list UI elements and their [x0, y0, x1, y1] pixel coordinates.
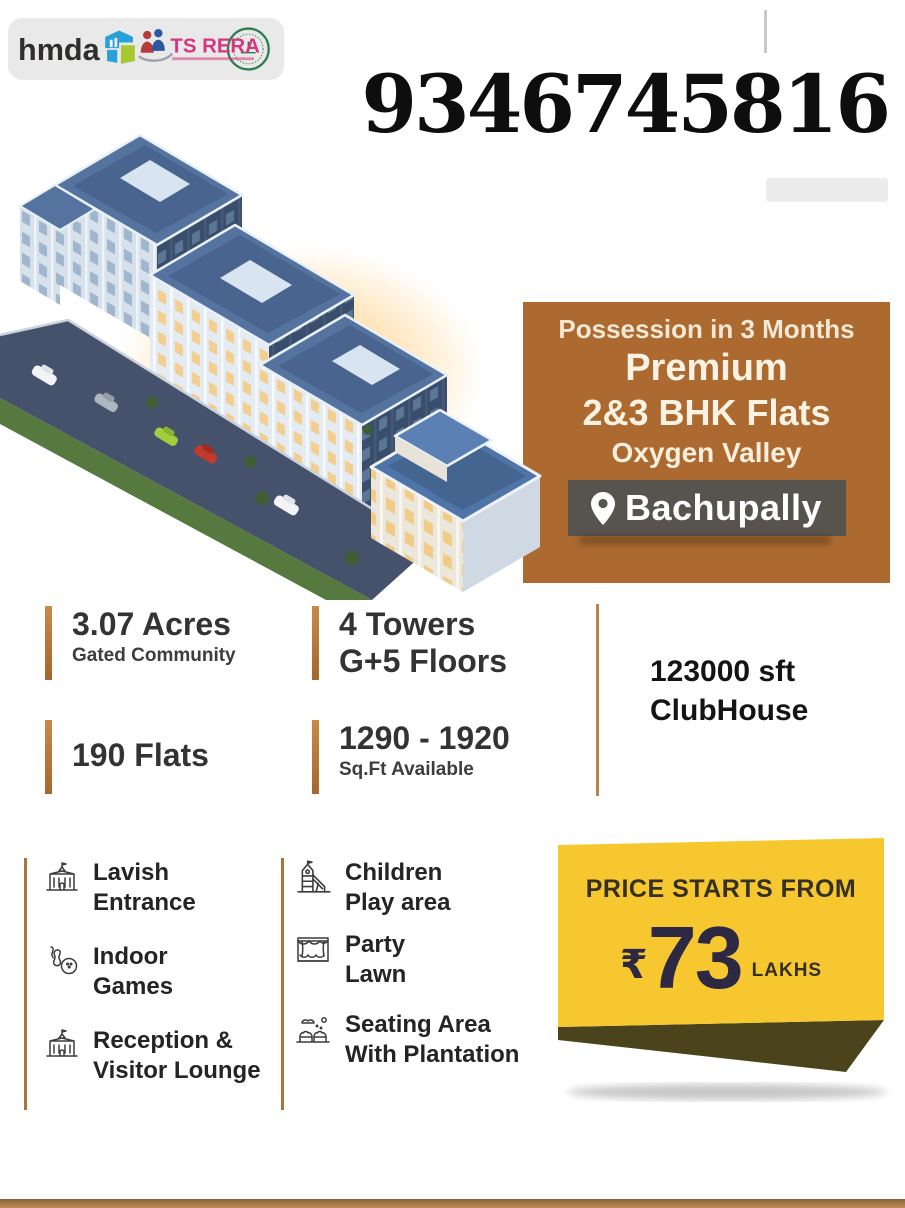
amenity-line1: Seating Area	[345, 1010, 519, 1040]
stat-value: 1290 - 1920	[339, 720, 510, 757]
amenity-seating-plantation: Seating Area With Plantation	[294, 1010, 519, 1070]
bottom-accent-strip	[0, 1199, 905, 1208]
reception-icon	[44, 1028, 80, 1058]
stat-value: 190 Flats	[72, 720, 209, 774]
clubhouse-line2: ClubHouse	[650, 691, 808, 730]
playground-icon	[296, 860, 332, 894]
clubhouse-stat: 123000 sft ClubHouse	[650, 652, 808, 730]
entrance-icon	[44, 860, 80, 892]
stat-value-2: G+5 Floors	[339, 643, 507, 680]
rera-label: TS RERA	[170, 36, 260, 58]
premium-text: Premium	[523, 346, 890, 390]
stat-flats: 190 Flats	[45, 720, 209, 794]
party-lawn-icon	[294, 932, 332, 964]
stat-bar	[312, 720, 319, 794]
stat-label: Sq.Ft Available	[339, 757, 510, 782]
bhk-text: 2&3 BHK Flats	[523, 390, 890, 435]
amenity-line2: Games	[93, 972, 173, 1002]
amenity-line1: Lavish	[93, 858, 196, 888]
possession-text: Possession in 3 Months	[523, 312, 890, 346]
stat-value: 4 Towers	[339, 606, 507, 643]
amenity-line1: Children	[345, 858, 450, 888]
stat-bar	[45, 606, 52, 680]
scan-artifact-line	[764, 10, 767, 53]
project-name: Oxygen Valley	[523, 435, 890, 471]
rupee-symbol: ₹	[620, 942, 648, 1004]
ts-rera-logo: TS RERA	[137, 23, 274, 75]
stat-acres: 3.07 Acres Gated Community	[45, 606, 236, 680]
price-unit: LAKHS	[742, 960, 822, 1004]
amenity-line2: Entrance	[93, 888, 196, 918]
amenity-line2: Play area	[345, 888, 450, 918]
scan-artifact-bar	[766, 178, 888, 202]
amenity-lavish-entrance: Lavish Entrance	[44, 858, 196, 918]
location-pin-icon	[591, 492, 615, 525]
location-band: Bachupally	[568, 480, 846, 536]
building-render	[0, 130, 545, 600]
amenity-line2: With Plantation	[345, 1040, 519, 1070]
flyer-page: hmda TS RERA 9346745816 Possession in 3 …	[0, 0, 905, 1208]
amenities-border-middle	[281, 858, 284, 1110]
stat-bar	[45, 720, 52, 794]
amenity-line1: Party	[345, 930, 406, 960]
bowling-icon	[42, 944, 80, 982]
offer-box: Possession in 3 Months Premium 2&3 BHK F…	[523, 302, 890, 583]
logo-plate: hmda TS RERA	[8, 18, 284, 80]
stat-sqft: 1290 - 1920 Sq.Ft Available	[312, 720, 510, 794]
amenity-reception-lounge: Reception & Visitor Lounge	[44, 1026, 261, 1086]
vertical-divider	[596, 604, 599, 796]
amenity-line2: Visitor Lounge	[93, 1056, 261, 1086]
stat-bar	[312, 606, 319, 680]
price-heading: PRICE STARTS FROM	[558, 875, 884, 904]
stat-value: 3.07 Acres	[72, 606, 236, 643]
stat-towers: 4 Towers G+5 Floors	[312, 606, 507, 680]
price-content: PRICE STARTS FROM ₹ 73 LAKHS	[558, 845, 884, 1004]
clubhouse-line1: 123000 sft	[650, 652, 808, 691]
stat-label: Gated Community	[72, 643, 236, 668]
seating-icon	[294, 1012, 332, 1044]
amenity-indoor-games: Indoor Games	[42, 942, 173, 1002]
amenity-party-lawn: Party Lawn	[294, 930, 406, 990]
location-name: Bachupally	[625, 487, 822, 529]
price-amount: 73	[648, 912, 742, 1004]
hmda-logo: hmda	[18, 26, 137, 72]
amenities-border-left	[24, 858, 27, 1110]
amenity-children-play-area: Children Play area	[296, 858, 450, 918]
amenity-line1: Reception &	[93, 1026, 261, 1056]
amenity-line2: Lawn	[345, 960, 406, 990]
svg-text:hmda: hmda	[18, 33, 101, 67]
amenity-line1: Indoor	[93, 942, 173, 972]
